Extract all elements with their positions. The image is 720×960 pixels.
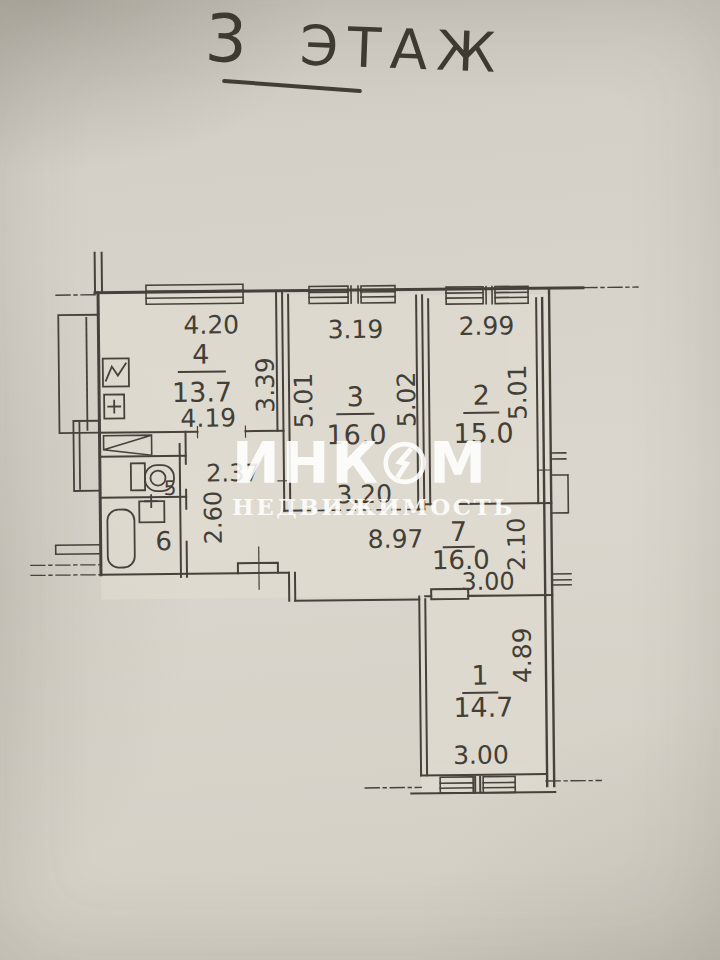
room-number: 1 bbox=[471, 660, 489, 691]
right-wall-hatches bbox=[551, 453, 571, 585]
wall-stub-top bbox=[95, 253, 102, 293]
dim-label: 3.19 bbox=[327, 315, 383, 345]
room-number: 7 bbox=[450, 516, 468, 547]
dim-label: 4.89 bbox=[508, 627, 538, 683]
top-wall-axis-right bbox=[583, 287, 638, 288]
dim-label: 3.00 bbox=[453, 740, 509, 770]
wc-top-wall bbox=[100, 456, 186, 457]
room-number: 4 bbox=[192, 339, 210, 370]
room-number: 3 bbox=[346, 381, 364, 412]
balcony-inner-line bbox=[79, 423, 80, 489]
axis-lines bbox=[31, 565, 101, 576]
dim-label: 2.37 bbox=[206, 459, 260, 488]
dim-label: 5.01 bbox=[289, 373, 319, 429]
dim-label: 3.20 bbox=[336, 480, 392, 510]
hatch bbox=[551, 453, 566, 459]
stair-landing bbox=[56, 545, 101, 554]
balcony-inner-line bbox=[86, 318, 87, 430]
dim-label: 5.02 bbox=[392, 372, 422, 428]
left-balcony bbox=[58, 315, 100, 491]
room-1-bottom-wall-inner bbox=[421, 774, 546, 775]
stairwell-fragment bbox=[31, 545, 101, 576]
room-number: 2 bbox=[472, 380, 490, 411]
dim-label: 3.39 bbox=[251, 357, 281, 413]
hatch bbox=[552, 574, 571, 585]
dim-label: 2.10 bbox=[502, 517, 531, 571]
balcony-lower bbox=[73, 421, 100, 491]
dim-label: 8.97 bbox=[368, 524, 424, 554]
hall-lower-wall bbox=[295, 599, 419, 600]
room-area: 15.0 bbox=[453, 417, 513, 449]
balcony-upper bbox=[58, 315, 99, 433]
room-area: 16.0 bbox=[326, 419, 386, 451]
dim-label: 4.19 bbox=[180, 403, 236, 433]
floor-plan: 4.20 4 13.7 4.19 3.39 3.19 5.01 3 16.0 5… bbox=[0, 0, 720, 960]
floor-plan-drawing: 4.20 4 13.7 4.19 3.39 3.19 5.01 3 16.0 5… bbox=[0, 0, 720, 960]
dim-label: 4.20 bbox=[183, 310, 239, 340]
hatch bbox=[551, 475, 568, 513]
dim-label: 5.01 bbox=[503, 364, 533, 420]
room-number: 6 bbox=[155, 526, 172, 556]
dim-label: 2.99 bbox=[458, 311, 514, 341]
dim-label: 2.60 bbox=[199, 491, 228, 545]
room-area: 14.7 bbox=[453, 691, 513, 723]
room-number: 5 bbox=[164, 476, 177, 500]
block-right-wall-inner bbox=[180, 444, 181, 577]
